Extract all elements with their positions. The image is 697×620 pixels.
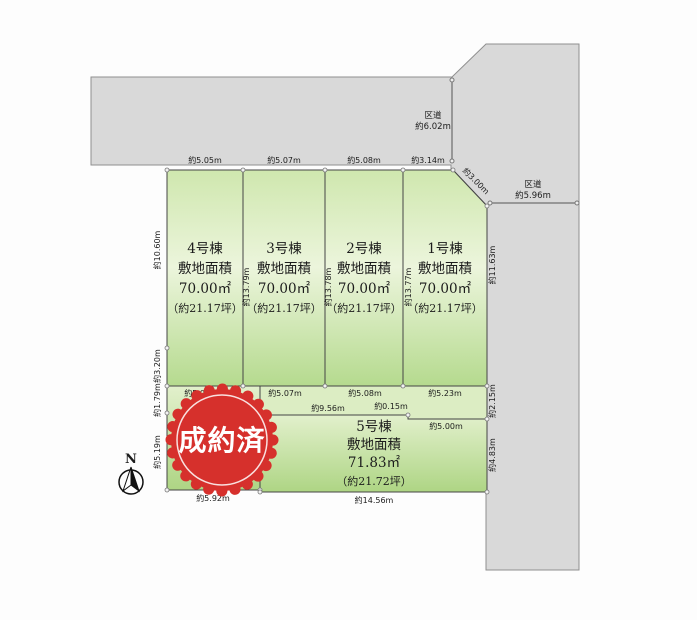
- dim-plot5-bottom: 約14.56m: [355, 495, 394, 505]
- plot-5-area-caption: 敷地面積: [347, 437, 401, 453]
- plot-2: [325, 170, 403, 386]
- plot-2-area-caption: 敷地面積: [337, 261, 391, 277]
- dim-plot5-top-right: 約5.00m: [429, 421, 463, 431]
- right-road-width: 約5.96m: [515, 190, 551, 201]
- plot-5-area-tsubo: （約21.72坪）: [336, 474, 412, 488]
- sold-seal: 成約済: [171, 389, 273, 491]
- dim-plot3-top: 約5.07m: [267, 155, 301, 165]
- dim-plot3-bottom: 約5.07m: [268, 388, 302, 398]
- top-road-width: 約6.02m: [415, 121, 451, 132]
- plot-1-area-m2: 70.00㎡: [419, 281, 472, 297]
- dim-left-upper: 約10.60m: [152, 230, 162, 269]
- dim-plot5-right: 約4.83m: [487, 438, 497, 472]
- plot-4-area-tsubo: （約21.17坪）: [167, 301, 243, 315]
- dim-left-bottom: 約5.19m: [152, 435, 162, 469]
- dim-plot1-right: 約11.63m: [487, 245, 497, 284]
- plot-4-area-m2: 70.00㎡: [179, 281, 232, 297]
- dim-left-low: 約1.79m: [152, 383, 162, 417]
- plot-2-area-m2: 70.00㎡: [338, 281, 391, 297]
- plot-1-area-caption: 敷地面積: [418, 261, 472, 277]
- dim-right-strip: 約2.15m: [487, 384, 497, 418]
- plot-2-id: 2号棟: [346, 241, 382, 257]
- top-road-name: 区道: [424, 110, 442, 121]
- dim-plot4-top: 約5.05m: [188, 155, 222, 165]
- plot-4-area-caption: 敷地面積: [178, 261, 232, 277]
- plot-5-id: 5号棟: [356, 419, 392, 435]
- dim-plot1-top: 約3.14m: [411, 155, 445, 165]
- dim-plot2-top: 約5.08m: [347, 155, 381, 165]
- lot-layout-canvas: 区道 約6.02m 区道 約5.96m 4号棟 敷地面積 70.00㎡ （約21…: [0, 0, 697, 620]
- dim-dot: [575, 201, 579, 205]
- plot-3-area-m2: 70.00㎡: [258, 281, 311, 297]
- dim-plot1-bottom: 約5.23m: [428, 388, 462, 398]
- plot-1: [403, 170, 487, 386]
- plot-3-area-caption: 敷地面積: [257, 261, 311, 277]
- plot-1-id: 1号棟: [427, 241, 463, 257]
- dim-left-mid: 約3.20m: [152, 349, 162, 383]
- plot-4: [167, 170, 243, 386]
- dim-dot: [450, 159, 454, 163]
- dim-depth-3-2: 約13.78m: [323, 267, 333, 306]
- dim-plot5-step: 約0.15m: [374, 401, 408, 411]
- plot-3: [243, 170, 325, 386]
- north-compass-icon: N: [119, 452, 143, 494]
- dim-depth-2-1: 約13.77m: [403, 267, 413, 306]
- dim-dot: [450, 78, 454, 82]
- lot-layout-diagram: 区道 約6.02m 区道 約5.96m 4号棟 敷地面積 70.00㎡ （約21…: [0, 0, 697, 620]
- plot-4-id: 4号棟: [187, 241, 223, 257]
- right-road-name: 区道: [524, 179, 542, 190]
- plot-3-id: 3号棟: [266, 241, 302, 257]
- plot-5-area-m2: 71.83㎡: [348, 455, 401, 471]
- plot-1-area-tsubo: （約21.17坪）: [407, 301, 483, 315]
- dim-plot5-top-left: 約9.56m: [311, 403, 345, 413]
- north-label: N: [125, 452, 137, 467]
- dim-depth-4-3: 約13.79m: [241, 267, 251, 306]
- plot-2-area-tsubo: （約21.17坪）: [326, 301, 402, 315]
- dim-plot2-bottom: 約5.08m: [348, 388, 382, 398]
- plot-3-area-tsubo: （約21.17坪）: [246, 301, 322, 315]
- seal-text: 成約済: [178, 424, 265, 457]
